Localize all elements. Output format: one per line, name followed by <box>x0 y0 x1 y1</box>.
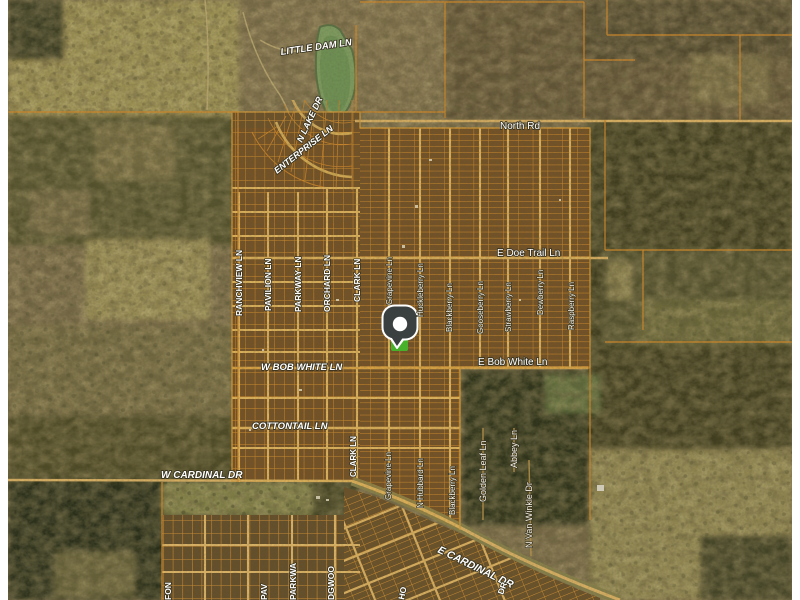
svg-text:CLARK LN: CLARK LN <box>352 259 362 302</box>
svg-text:N Hubbard Ln: N Hubbard Ln <box>416 458 425 508</box>
svg-text:PARKWA: PARKWA <box>288 563 298 600</box>
svg-text:Blackberry Ln: Blackberry Ln <box>445 283 454 332</box>
svg-text:Grapevine Ln: Grapevine Ln <box>384 452 393 500</box>
svg-text:CLARK LN: CLARK LN <box>349 436 358 477</box>
svg-text:Gooseberry Ln: Gooseberry Ln <box>476 281 485 334</box>
svg-text:Grapevine Ln: Grapevine Ln <box>385 257 394 305</box>
svg-text:E Bob White Ln: E Bob White Ln <box>478 357 547 368</box>
svg-text:Dewberry Ln: Dewberry Ln <box>536 270 545 315</box>
svg-text:Abbey Ln: Abbey Ln <box>509 430 519 468</box>
svg-text:PAV: PAV <box>259 583 269 600</box>
svg-text:Raspberry Ln: Raspberry Ln <box>567 282 576 330</box>
svg-text:E Doe Trail Ln: E Doe Trail Ln <box>497 248 560 259</box>
svg-text:ORCHARD LN: ORCHARD LN <box>322 255 332 312</box>
svg-text:DGWOO: DGWOO <box>326 566 336 600</box>
svg-text:RANCHVIEW LN: RANCHVIEW LN <box>234 250 244 316</box>
svg-text:PARKWAY LN: PARKWAY LN <box>293 256 303 312</box>
svg-text:North Rd: North Rd <box>500 121 540 132</box>
svg-text:COTTONTAIL LN: COTTONTAIL LN <box>252 421 329 432</box>
svg-text:W CARDINAL DR: W CARDINAL DR <box>161 470 243 481</box>
svg-text:N Van Winkle Dr: N Van Winkle Dr <box>524 482 534 548</box>
svg-text:Golden Leaf Ln: Golden Leaf Ln <box>478 440 488 502</box>
svg-text:Blackberry Ln: Blackberry Ln <box>448 466 457 515</box>
svg-text:Strawberry Ln: Strawberry Ln <box>504 282 513 332</box>
svg-text:FON: FON <box>163 582 173 600</box>
svg-text:Huckleberry Ln: Huckleberry Ln <box>416 263 425 317</box>
svg-text:W BOB WHITE LN: W BOB WHITE LN <box>261 362 343 373</box>
svg-text:PAVILION LN: PAVILION LN <box>263 258 273 311</box>
